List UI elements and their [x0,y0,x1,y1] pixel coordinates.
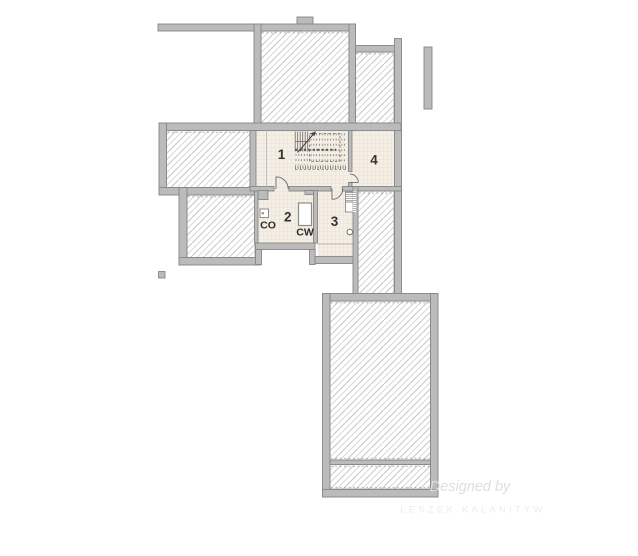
svg-text:CO: CO [260,220,276,232]
svg-text:Designed by: Designed by [430,479,511,495]
svg-text:CW: CW [296,227,314,239]
svg-text:2: 2 [284,209,292,224]
svg-text:3: 3 [331,214,339,229]
svg-text:1: 1 [278,147,286,162]
svg-text:4: 4 [370,153,378,168]
svg-text:LESZEK KALANITYW: LESZEK KALANITYW [400,505,545,516]
